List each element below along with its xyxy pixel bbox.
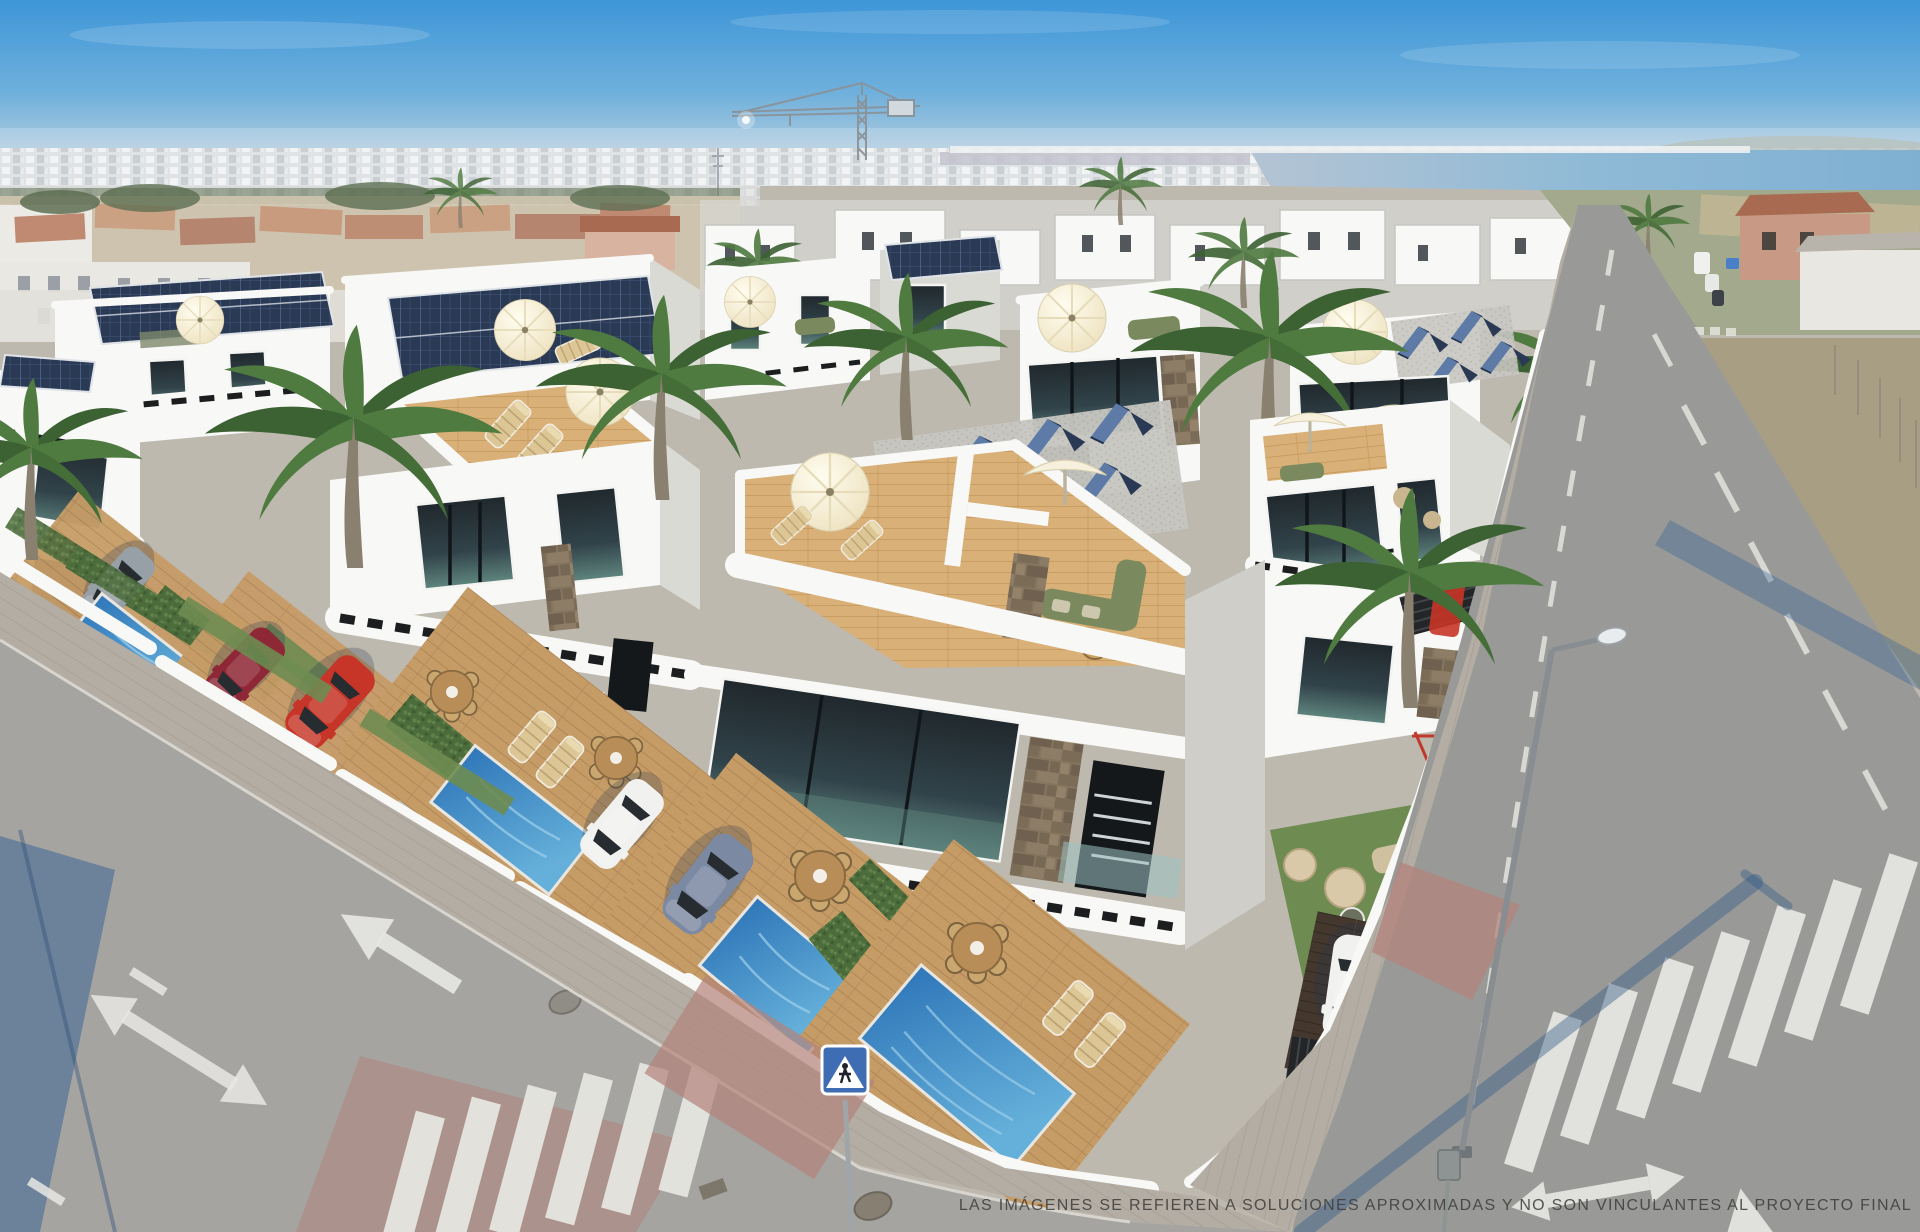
egg-chair [1284,849,1316,881]
far-shoreline [950,146,1750,153]
render-image: LAS IMÁGENES SE REFIEREN A SOLUCIONES AP… [0,0,1920,1232]
disclaimer-text: LAS IMÁGENES SE REFIEREN A SOLUCIONES AP… [959,1197,1912,1215]
egg-chair [1325,868,1365,908]
white-house [1800,250,1920,330]
side-passage [1185,560,1265,950]
lagoon [1250,150,1920,196]
sky [0,0,1920,170]
glass-balustrade [1058,841,1183,898]
villa-development-render [0,0,1920,1232]
far-lagoon [940,152,1250,165]
blue-tarp [1726,258,1739,269]
